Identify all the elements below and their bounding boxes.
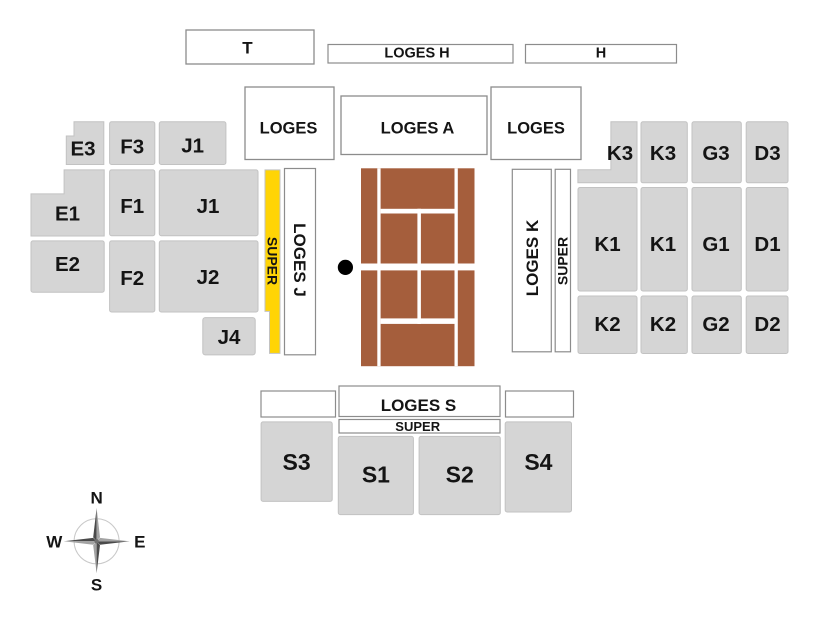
svg-text:SUPER: SUPER (395, 419, 440, 434)
svg-text:S3: S3 (283, 449, 311, 475)
svg-text:S: S (91, 575, 102, 594)
svg-text:D2: D2 (754, 313, 780, 336)
svg-text:LOGES: LOGES (507, 119, 565, 137)
svg-text:E3: E3 (70, 138, 95, 161)
svg-text:T: T (242, 38, 253, 57)
svg-text:G1: G1 (702, 233, 729, 256)
svg-text:J4: J4 (218, 326, 241, 349)
svg-text:G3: G3 (702, 142, 729, 165)
svg-text:K3: K3 (650, 142, 676, 165)
svg-text:W: W (46, 532, 63, 551)
svg-text:J1: J1 (197, 195, 220, 218)
svg-text:SUPER: SUPER (265, 237, 281, 285)
svg-text:E: E (134, 532, 145, 551)
svg-text:J2: J2 (197, 266, 220, 289)
svg-text:K1: K1 (650, 233, 676, 256)
svg-text:E2: E2 (55, 253, 80, 276)
svg-text:LOGES K: LOGES K (523, 219, 542, 296)
svg-text:LOGES: LOGES (260, 119, 318, 137)
svg-text:LOGES H: LOGES H (384, 46, 449, 62)
svg-text:K3: K3 (607, 142, 633, 165)
svg-text:H: H (596, 46, 606, 62)
svg-text:LOGES A: LOGES A (381, 119, 455, 137)
svg-text:LOGES S: LOGES S (381, 396, 457, 415)
svg-text:D3: D3 (754, 142, 780, 165)
svg-text:K1: K1 (594, 233, 620, 256)
svg-text:F2: F2 (120, 267, 144, 290)
svg-text:N: N (90, 489, 102, 508)
svg-text:G2: G2 (702, 313, 729, 336)
svg-text:S2: S2 (446, 462, 474, 488)
svg-text:LOGES J: LOGES J (290, 223, 309, 297)
svg-text:K2: K2 (650, 313, 676, 336)
svg-text:SUPER: SUPER (555, 237, 571, 285)
svg-text:F3: F3 (120, 136, 144, 159)
svg-text:F1: F1 (120, 195, 144, 218)
svg-text:K2: K2 (594, 313, 620, 336)
svg-text:S1: S1 (362, 462, 390, 488)
svg-text:E1: E1 (55, 203, 80, 226)
svg-text:S4: S4 (524, 449, 552, 475)
svg-text:D1: D1 (754, 233, 780, 256)
svg-text:J1: J1 (181, 135, 204, 158)
